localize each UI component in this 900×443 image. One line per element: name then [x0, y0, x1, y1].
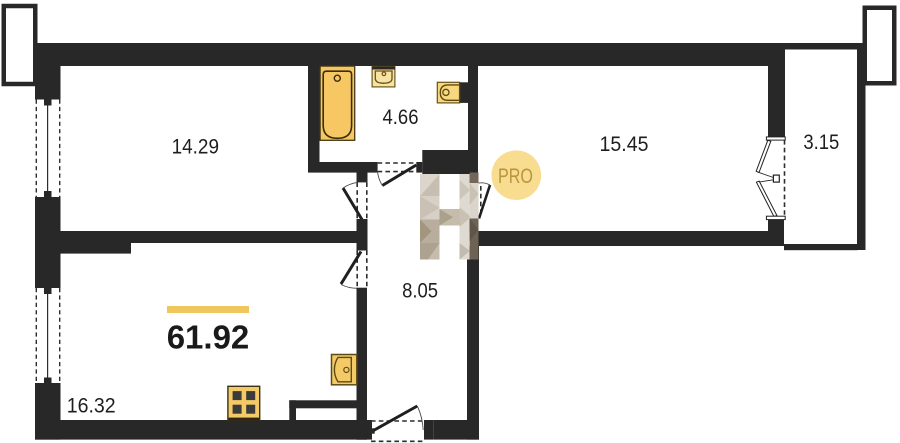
- svg-text:16.32: 16.32: [67, 394, 116, 418]
- svg-text:PRO: PRO: [498, 165, 533, 189]
- svg-text:3.15: 3.15: [803, 131, 839, 154]
- svg-text:14.29: 14.29: [172, 135, 219, 158]
- svg-text:4.66: 4.66: [383, 106, 419, 129]
- svg-text:15.45: 15.45: [600, 132, 649, 156]
- svg-text:8.05: 8.05: [402, 279, 438, 302]
- svg-text:61.92: 61.92: [167, 318, 250, 355]
